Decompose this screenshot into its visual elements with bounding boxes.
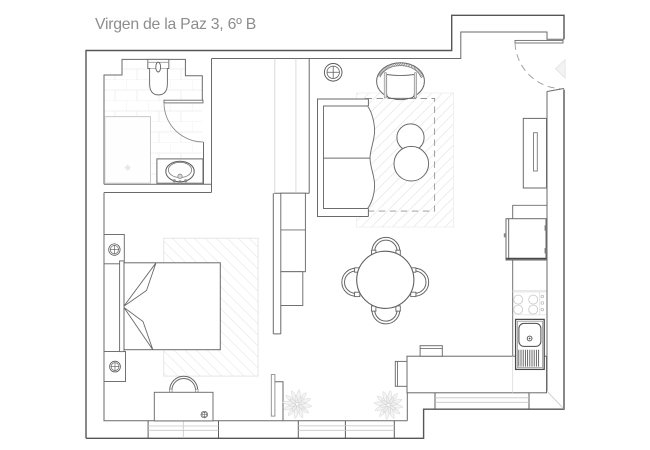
svg-text:Virgen de la Paz 3, 6º B: Virgen de la Paz 3, 6º B (95, 16, 256, 33)
